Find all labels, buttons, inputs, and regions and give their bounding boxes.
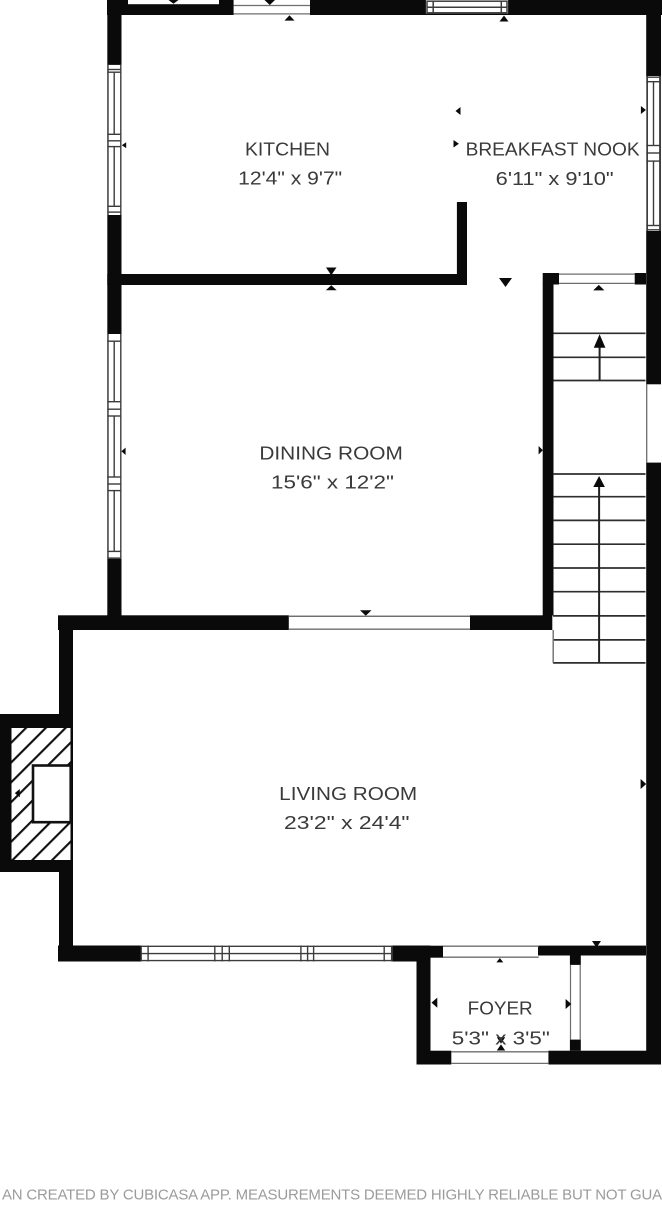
svg-text:12'4" x 9'7": 12'4" x 9'7" [238,167,342,188]
svg-text:6'11" x 9'10": 6'11" x 9'10" [496,168,614,189]
svg-text:DINING ROOM: DINING ROOM [259,443,403,464]
svg-text:23'2" x 24'4": 23'2" x 24'4" [284,812,410,833]
svg-text:KITCHEN: KITCHEN [245,139,330,160]
svg-text:BREAKFAST NOOK: BREAKFAST NOOK [466,139,641,160]
svg-text:LIVING ROOM: LIVING ROOM [279,783,417,804]
svg-text:FOYER: FOYER [468,998,533,1019]
svg-text:15'6" x 12'2": 15'6" x 12'2" [271,472,394,493]
svg-text:AN CREATED BY CUBICASA APP. ME: AN CREATED BY CUBICASA APP. MEASUREMENTS… [2,1187,662,1203]
svg-text:5'3" x 3'5": 5'3" x 3'5" [452,1027,550,1048]
